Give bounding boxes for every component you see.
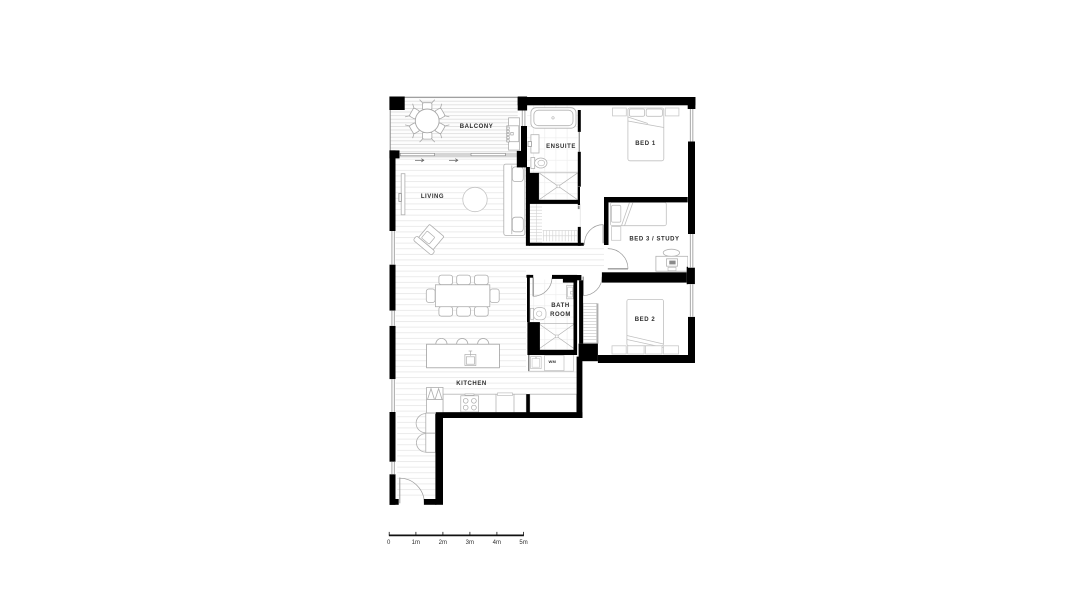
svg-text:BED 3 / STUDY: BED 3 / STUDY — [629, 237, 679, 243]
svg-text:4m: 4m — [493, 540, 502, 546]
svg-text:BED 1: BED 1 — [635, 141, 656, 147]
svg-text:KITCHEN: KITCHEN — [456, 381, 487, 387]
svg-text:1m: 1m — [412, 540, 421, 546]
svg-text:ROOM: ROOM — [550, 312, 571, 318]
svg-text:3m: 3m — [466, 540, 475, 546]
svg-text:5m: 5m — [519, 540, 528, 546]
svg-text:WM: WM — [549, 359, 557, 364]
svg-text:BED 2: BED 2 — [635, 317, 656, 323]
svg-text:BATH: BATH — [551, 303, 569, 309]
svg-text:BALCONY: BALCONY — [460, 124, 494, 130]
svg-text:LIVING: LIVING — [421, 194, 444, 200]
svg-text:2m: 2m — [439, 540, 448, 546]
svg-text:ENSUITE: ENSUITE — [546, 144, 576, 150]
svg-text:0: 0 — [387, 540, 391, 546]
